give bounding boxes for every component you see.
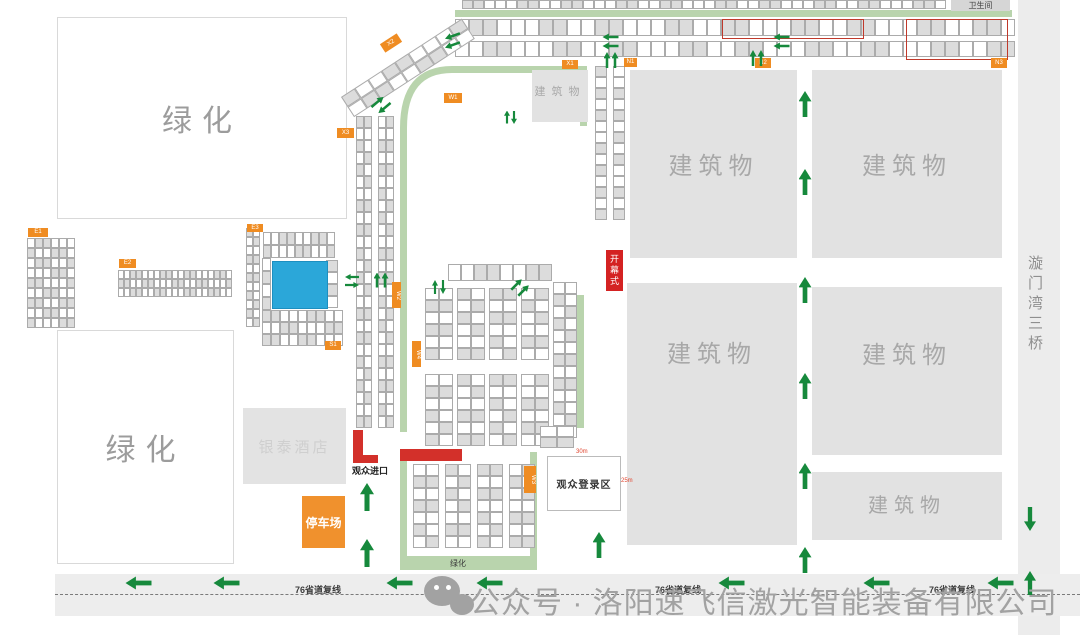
booth-cell xyxy=(378,260,386,272)
booth-cell xyxy=(581,41,595,57)
booth-cell xyxy=(471,422,485,434)
booth-cell xyxy=(458,500,471,512)
booth-cell xyxy=(43,288,51,298)
booth-cell xyxy=(749,41,763,57)
booth-cell xyxy=(378,272,386,284)
booth-cell xyxy=(503,398,517,410)
booth-cell xyxy=(567,41,581,57)
booth-cell xyxy=(613,187,625,198)
booth-cell xyxy=(35,288,43,298)
booth-cell xyxy=(770,0,781,9)
building-label: 建筑物 xyxy=(532,83,588,99)
booth-cell xyxy=(287,232,295,245)
booth-cell xyxy=(525,19,539,36)
booth-cell xyxy=(386,212,394,224)
booth-cell xyxy=(413,536,426,548)
booth-cell xyxy=(262,284,271,297)
booth-cell xyxy=(471,324,485,336)
booth-cell xyxy=(847,41,861,57)
booth-cell xyxy=(59,288,67,298)
booth-cell xyxy=(356,248,364,260)
booth-cell xyxy=(378,188,386,200)
booth-cell xyxy=(814,0,825,9)
booth-cell xyxy=(715,0,726,9)
green-road xyxy=(577,295,584,428)
booth-cell xyxy=(364,176,372,188)
booth-cell xyxy=(511,41,525,57)
booth-cell xyxy=(378,176,386,188)
booth-cell xyxy=(262,297,271,310)
booth-cell xyxy=(595,198,607,209)
booth-cell xyxy=(27,288,35,298)
booth-cell xyxy=(226,270,232,279)
booth-cell xyxy=(483,19,497,36)
booth-cell xyxy=(413,500,426,512)
booth-cell xyxy=(439,312,453,324)
booth-cell xyxy=(253,282,260,291)
booth-cell xyxy=(565,378,577,390)
booth-cell xyxy=(356,152,364,164)
booth-cell xyxy=(535,398,549,410)
booth-cell xyxy=(457,410,471,422)
booth-cell xyxy=(356,188,364,200)
booth-cell xyxy=(526,264,539,281)
booth-cell xyxy=(461,264,474,281)
booth-cell xyxy=(246,300,253,309)
opening-ceremony-marker: 开幕式 xyxy=(606,250,623,291)
booth-cell xyxy=(679,19,693,36)
booth-cell xyxy=(43,258,51,268)
booth-cell xyxy=(458,512,471,524)
booth-cell xyxy=(565,366,577,378)
booth-cell xyxy=(521,312,535,324)
booth-cell xyxy=(295,245,303,258)
booth-cell xyxy=(707,41,721,57)
booth-cluster xyxy=(595,66,607,220)
booth-cell xyxy=(439,336,453,348)
booth-cell xyxy=(279,245,287,258)
booth-cell xyxy=(565,318,577,330)
booth-cell xyxy=(253,237,260,246)
building-block: 建筑物 xyxy=(812,472,1002,540)
booth-cell xyxy=(378,128,386,140)
booth-cell xyxy=(386,224,394,236)
booth-cell xyxy=(27,318,35,328)
booth-cell xyxy=(364,212,372,224)
booth-cell xyxy=(522,512,535,524)
booth-cell xyxy=(439,410,453,422)
booth-cell xyxy=(364,320,372,332)
booth-cell xyxy=(311,232,319,245)
booth-cell xyxy=(521,374,535,386)
booth-cell xyxy=(67,238,75,248)
booth-cell xyxy=(539,0,550,9)
booth-cell xyxy=(35,258,43,268)
booth-cell xyxy=(356,356,364,368)
booth-cell xyxy=(253,246,260,255)
booth-cell xyxy=(889,19,903,36)
booth-cell xyxy=(539,41,553,57)
booth-cell xyxy=(51,278,59,288)
booth-cell xyxy=(553,342,565,354)
booth-cluster xyxy=(425,374,453,446)
booth-cell xyxy=(364,416,372,428)
booth-cluster xyxy=(540,426,574,448)
booth-cell xyxy=(413,488,426,500)
booth-cell xyxy=(521,300,535,312)
booth-cell xyxy=(513,264,526,281)
booth-cell xyxy=(539,264,552,281)
entrance-gate-mark xyxy=(400,449,462,461)
booth-cell xyxy=(458,476,471,488)
booth-cell xyxy=(861,41,875,57)
booth-cell xyxy=(457,312,471,324)
building-label: 建筑物 xyxy=(630,146,797,181)
booth-cluster xyxy=(521,288,549,360)
booth-cell xyxy=(503,312,517,324)
booth-cell xyxy=(425,410,439,422)
booth-cell xyxy=(497,19,511,36)
booth-cluster xyxy=(378,116,394,428)
booth-cell xyxy=(59,258,67,268)
booth-cell xyxy=(489,434,503,446)
booth-cell xyxy=(503,324,517,336)
booth-cell xyxy=(364,380,372,392)
booth-cell xyxy=(426,476,439,488)
booth-cluster xyxy=(263,232,335,258)
booth-cell xyxy=(426,500,439,512)
booth-cell xyxy=(791,41,805,57)
booth-cell xyxy=(553,41,567,57)
booth-cell xyxy=(651,41,665,57)
booth-cell xyxy=(386,380,394,392)
booth-cell xyxy=(67,288,75,298)
booth-cell xyxy=(693,19,707,36)
booth-cell xyxy=(386,260,394,272)
booth-cell xyxy=(439,398,453,410)
booth-cell xyxy=(356,332,364,344)
booth-cell xyxy=(364,356,372,368)
booth-cell xyxy=(521,288,535,300)
booth-cell xyxy=(471,374,485,386)
booth-cell xyxy=(836,0,847,9)
booth-cell xyxy=(271,245,279,258)
booth-cell xyxy=(565,354,577,366)
booth-cell xyxy=(262,258,271,271)
booth-cell xyxy=(325,310,334,322)
booth-cell xyxy=(693,0,704,9)
booth-cluster xyxy=(118,270,232,297)
booth-cell xyxy=(553,366,565,378)
booth-cell xyxy=(289,322,298,334)
booth-cell xyxy=(413,512,426,524)
booth-cell xyxy=(726,0,737,9)
entrance-gate-mark xyxy=(353,455,378,463)
booth-cell xyxy=(439,348,453,360)
booth-cell xyxy=(364,260,372,272)
registration-height-dim: 25m xyxy=(621,478,633,484)
booth-cell xyxy=(253,309,260,318)
booth-cell xyxy=(356,416,364,428)
booth-cell xyxy=(489,398,503,410)
booth-cell xyxy=(27,308,35,318)
booth-cell xyxy=(327,232,335,245)
booth-cell xyxy=(364,404,372,416)
booth-cell xyxy=(364,392,372,404)
booth-cell xyxy=(792,0,803,9)
booth-cell xyxy=(334,322,343,334)
booth-cell xyxy=(356,200,364,212)
booth-cluster xyxy=(27,238,75,328)
booth-cell xyxy=(613,99,625,110)
booth-cell xyxy=(364,224,372,236)
zone-label-E2: E2 xyxy=(119,259,136,268)
booth-cell xyxy=(425,336,439,348)
booth-cell xyxy=(295,232,303,245)
booth-cell xyxy=(539,19,553,36)
booth-cell xyxy=(489,300,503,312)
booth-cell xyxy=(253,291,260,300)
booth-cell xyxy=(521,386,535,398)
booth-cell xyxy=(445,476,458,488)
booth-cell xyxy=(303,245,311,258)
booth-cell xyxy=(665,19,679,36)
booth-cell xyxy=(469,41,483,57)
booth-cell xyxy=(553,414,565,426)
booth-cell xyxy=(319,245,327,258)
booth-cell xyxy=(613,165,625,176)
booth-cell xyxy=(679,41,693,57)
booth-cell xyxy=(425,324,439,336)
booth-cell xyxy=(51,308,59,318)
booth-cell xyxy=(565,414,577,426)
booth-cell xyxy=(356,128,364,140)
booth-cell xyxy=(426,512,439,524)
booth-cell xyxy=(67,258,75,268)
booth-cell xyxy=(27,248,35,258)
booth-cell xyxy=(439,386,453,398)
booth-cell xyxy=(356,224,364,236)
booth-cell xyxy=(623,41,637,57)
booth-cell xyxy=(495,0,506,9)
booth-cell xyxy=(262,310,271,322)
booth-cell xyxy=(649,0,660,9)
booth-cell xyxy=(378,152,386,164)
booth-cell xyxy=(535,410,549,422)
booth-cell xyxy=(386,320,394,332)
booth-cell xyxy=(445,500,458,512)
booth-cell xyxy=(671,0,682,9)
booth-cell xyxy=(748,0,759,9)
booth-cell xyxy=(477,500,490,512)
booth-cell xyxy=(413,476,426,488)
booth-cell xyxy=(521,348,535,360)
highlighted-booth-group xyxy=(722,19,864,39)
booth-cell xyxy=(445,536,458,548)
booth-cell xyxy=(595,176,607,187)
entrance-label: 观众进口 xyxy=(352,464,388,477)
booth-cell xyxy=(311,245,319,258)
booth-cell xyxy=(364,344,372,356)
booth-cell xyxy=(386,404,394,416)
booth-cell xyxy=(891,0,902,9)
booth-cell xyxy=(517,0,528,9)
booth-cell xyxy=(660,0,671,9)
booth-cluster xyxy=(489,374,517,446)
booth-cluster xyxy=(489,288,517,360)
booth-cell xyxy=(319,232,327,245)
booth-cell xyxy=(386,344,394,356)
booth-cell xyxy=(364,164,372,176)
booth-cell xyxy=(439,288,453,300)
booth-cell xyxy=(356,212,364,224)
booth-cell xyxy=(426,488,439,500)
booth-cell xyxy=(271,322,280,334)
booth-cell xyxy=(246,291,253,300)
booth-cell xyxy=(439,324,453,336)
booth-cell xyxy=(595,110,607,121)
booth-cell xyxy=(253,318,260,327)
booth-cell xyxy=(509,524,522,536)
booth-cell xyxy=(503,374,517,386)
booth-cell xyxy=(595,154,607,165)
booth-cell xyxy=(298,310,307,322)
booth-cell xyxy=(613,143,625,154)
booth-cell xyxy=(609,41,623,57)
building-block: 建筑物 xyxy=(630,70,797,258)
booth-cell xyxy=(59,268,67,278)
booth-cell xyxy=(509,488,522,500)
booth-cell xyxy=(364,140,372,152)
booth-cell xyxy=(280,310,289,322)
booth-cell xyxy=(595,143,607,154)
booth-cell xyxy=(483,41,497,57)
booth-cell xyxy=(425,434,439,446)
booth-cell xyxy=(489,386,503,398)
booth-cell xyxy=(386,308,394,320)
booth-cell xyxy=(521,434,535,446)
booth-cluster xyxy=(445,464,471,548)
booth-cell xyxy=(535,348,549,360)
booth-cell xyxy=(386,116,394,128)
booth-cell xyxy=(27,268,35,278)
booth-cell xyxy=(425,300,439,312)
booth-cell xyxy=(364,248,372,260)
booth-cell xyxy=(613,77,625,88)
booth-cell xyxy=(307,334,316,346)
booth-cell xyxy=(457,422,471,434)
booth-cell xyxy=(781,0,792,9)
booth-cluster xyxy=(553,282,577,438)
booth-cell xyxy=(535,324,549,336)
booth-cell xyxy=(356,164,364,176)
booth-cell xyxy=(553,318,565,330)
booth-cell xyxy=(307,310,316,322)
booth-cell xyxy=(935,0,946,9)
booth-cell xyxy=(378,344,386,356)
booth-cell xyxy=(623,19,637,36)
booth-cell xyxy=(280,334,289,346)
booth-cell xyxy=(439,422,453,434)
booth-cell xyxy=(356,296,364,308)
booth-cell xyxy=(613,110,625,121)
booth-cell xyxy=(263,245,271,258)
booth-cell xyxy=(553,330,565,342)
booth-cell xyxy=(289,334,298,346)
booth-cell xyxy=(51,238,59,248)
booth-cell xyxy=(509,476,522,488)
registration-width-dim: 30m xyxy=(576,449,588,455)
booth-cell xyxy=(439,374,453,386)
zone-label-N3: N3 xyxy=(991,58,1007,68)
booth-cell xyxy=(378,368,386,380)
booth-cell xyxy=(356,236,364,248)
booth-cell xyxy=(477,476,490,488)
booth-cell xyxy=(271,310,280,322)
booth-cell xyxy=(503,410,517,422)
booth-cell xyxy=(509,464,522,476)
booth-cell xyxy=(43,248,51,258)
booth-cell xyxy=(287,245,295,258)
booth-cell xyxy=(825,0,836,9)
booth-cell xyxy=(356,140,364,152)
booth-cell xyxy=(303,232,311,245)
booth-cell xyxy=(386,356,394,368)
booth-cell xyxy=(613,88,625,99)
booth-cell xyxy=(869,0,880,9)
booth-cell xyxy=(567,19,581,36)
booth-cell xyxy=(316,310,325,322)
booth-cell xyxy=(521,336,535,348)
booth-cell xyxy=(553,282,565,294)
booth-cell xyxy=(356,308,364,320)
booth-cell xyxy=(553,19,567,36)
booth-cell xyxy=(457,300,471,312)
booth-cluster xyxy=(356,116,372,428)
booth-cell xyxy=(553,306,565,318)
booth-cell xyxy=(506,0,517,9)
booth-cell xyxy=(737,0,748,9)
greenery-bottom-label: 绿化 xyxy=(106,425,186,469)
booth-cell xyxy=(378,308,386,320)
booth-cell xyxy=(457,348,471,360)
booth-cell xyxy=(535,288,549,300)
booth-cell xyxy=(503,288,517,300)
booth-cluster xyxy=(246,228,260,327)
booth-cell xyxy=(458,536,471,548)
booth-cell xyxy=(27,238,35,248)
booth-cell xyxy=(426,536,439,548)
booth-cell xyxy=(262,322,271,334)
booth-cell xyxy=(378,380,386,392)
registration-label: 观众登录区 xyxy=(557,476,612,491)
booth-cell xyxy=(246,309,253,318)
booth-cell xyxy=(356,368,364,380)
booth-cell xyxy=(528,0,539,9)
booth-cell xyxy=(721,41,735,57)
booth-cell xyxy=(489,348,503,360)
booth-cell xyxy=(511,19,525,36)
booth-cell xyxy=(356,284,364,296)
booth-cell xyxy=(553,378,565,390)
booth-cell xyxy=(605,0,616,9)
booth-cell xyxy=(535,386,549,398)
building-block: 建筑物 xyxy=(627,283,797,545)
booth-cell xyxy=(565,294,577,306)
booth-cell xyxy=(356,116,364,128)
booth-cell xyxy=(448,264,461,281)
booth-cluster xyxy=(462,0,946,9)
